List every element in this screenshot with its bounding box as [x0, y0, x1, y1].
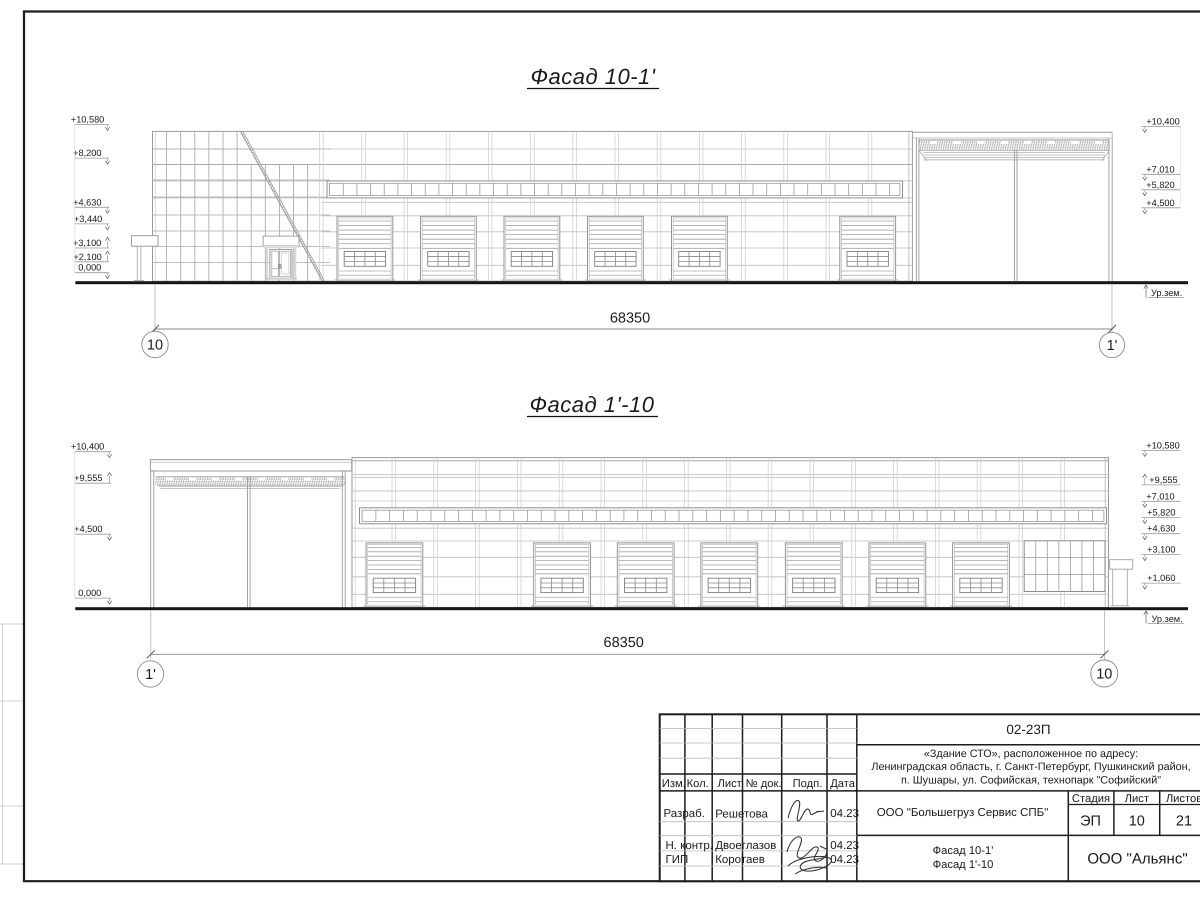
svg-text:10: 10	[147, 338, 163, 354]
svg-text:Разраб.: Разраб.	[664, 808, 705, 820]
svg-text:Коротаев: Коротаев	[715, 854, 765, 866]
svg-text:+10,400: +10,400	[71, 442, 104, 452]
svg-text:Кол.: Кол.	[687, 778, 709, 790]
svg-text:1': 1'	[145, 667, 156, 683]
svg-text:+7,010: +7,010	[1146, 164, 1174, 174]
svg-text:Фасад 10-1': Фасад 10-1'	[933, 845, 994, 857]
svg-text:+10,580: +10,580	[1146, 441, 1179, 451]
svg-text:Подп.: Подп.	[793, 778, 823, 790]
svg-text:Н. контр.: Н. контр.	[666, 840, 713, 852]
svg-text:10: 10	[1096, 667, 1112, 683]
svg-text:Лист: Лист	[718, 778, 742, 790]
svg-text:п. Шушары, ул. Софийская, техн: п. Шушары, ул. Софийская, технопарк "Соф…	[901, 774, 1161, 786]
svg-text:+1,060: +1,060	[1147, 573, 1175, 583]
svg-text:+5,820: +5,820	[1146, 180, 1174, 190]
svg-text:+10,400: +10,400	[1146, 116, 1179, 126]
svg-text:№ док.: № док.	[746, 778, 782, 790]
svg-text:+9,555: +9,555	[1149, 475, 1177, 485]
svg-text:+8,200: +8,200	[73, 148, 101, 158]
svg-text:68350: 68350	[604, 635, 644, 651]
svg-text:ЭП: ЭП	[1080, 813, 1101, 829]
svg-text:Ленинградская область, г. Санк: Ленинградская область, г. Санкт-Петербур…	[871, 761, 1190, 773]
svg-text:+7,010: +7,010	[1146, 491, 1174, 501]
svg-text:Листов: Листов	[1166, 793, 1200, 805]
svg-text:+3,100: +3,100	[73, 238, 101, 248]
svg-text:Двоеглазов: Двоеглазов	[715, 840, 776, 852]
svg-text:Дата: Дата	[830, 778, 856, 790]
svg-text:ООО "Большегруз Сервис СПБ": ООО "Большегруз Сервис СПБ"	[877, 807, 1049, 819]
svg-text:10: 10	[1129, 813, 1145, 829]
svg-text:ГИП: ГИП	[666, 854, 689, 866]
svg-text:21: 21	[1176, 813, 1192, 829]
svg-text:1': 1'	[1107, 338, 1118, 354]
svg-text:ООО "Альянс": ООО "Альянс"	[1087, 850, 1187, 867]
svg-text:+3,100: +3,100	[1147, 545, 1175, 555]
svg-text:Лист: Лист	[1125, 793, 1149, 805]
svg-text:02-23П: 02-23П	[1006, 722, 1050, 737]
svg-text:+3,440: +3,440	[74, 214, 102, 224]
svg-text:Ур.зем.: Ур.зем.	[1151, 288, 1182, 298]
svg-text:Ур.зем.: Ур.зем.	[1152, 614, 1183, 624]
svg-text:04.23: 04.23	[830, 854, 859, 866]
svg-text:68350: 68350	[610, 311, 650, 327]
svg-text:«Здание СТО», расположенное по: «Здание СТО», расположенное по адресу:	[924, 748, 1138, 760]
svg-text:Фасад 1'-10: Фасад 1'-10	[933, 859, 994, 871]
svg-text:+9,555: +9,555	[74, 473, 102, 483]
svg-text:04.23: 04.23	[830, 808, 859, 820]
svg-text:Изм.: Изм.	[662, 778, 686, 790]
svg-text:04.23: 04.23	[830, 840, 859, 852]
svg-text:+5,820: +5,820	[1147, 508, 1175, 518]
svg-text:0,000: 0,000	[78, 263, 101, 273]
svg-text:+4,500: +4,500	[1146, 198, 1174, 208]
svg-text:Фасад 10-1': Фасад 10-1'	[531, 64, 656, 89]
svg-text:+4,630: +4,630	[73, 197, 101, 207]
svg-text:Решетова: Решетова	[715, 809, 768, 821]
svg-text:Стадия: Стадия	[1072, 793, 1110, 805]
svg-text:+4,630: +4,630	[1147, 524, 1175, 534]
svg-text:+2,100: +2,100	[73, 252, 101, 262]
svg-text:0,000: 0,000	[78, 588, 101, 598]
svg-text:+4,500: +4,500	[74, 524, 102, 534]
svg-text:Фасад 1'-10: Фасад 1'-10	[530, 392, 655, 417]
svg-text:+10,580: +10,580	[71, 115, 104, 125]
